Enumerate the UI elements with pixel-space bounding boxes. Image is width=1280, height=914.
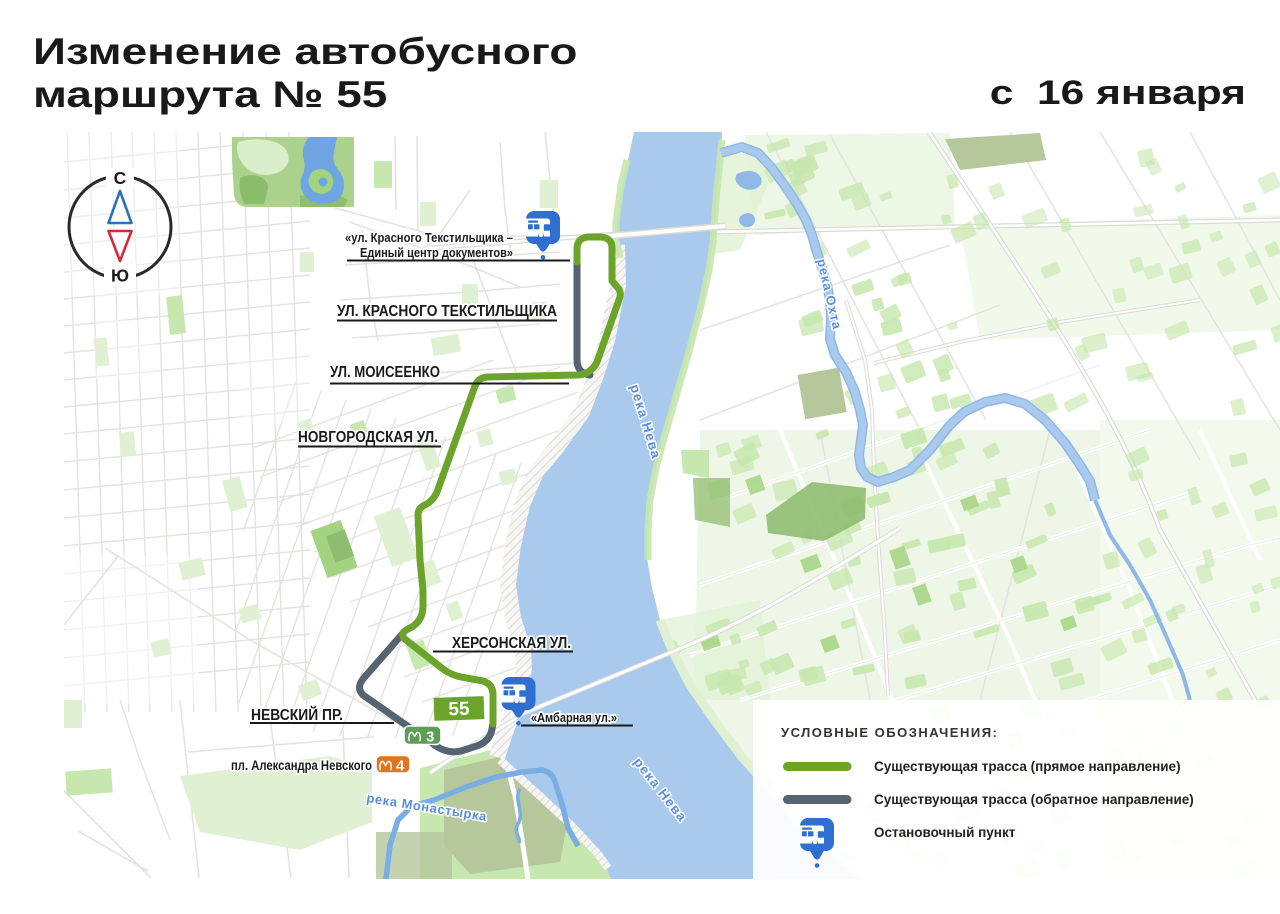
- svg-text:4: 4: [396, 758, 405, 775]
- svg-text:пл. Александра Невского: пл. Александра Невского: [231, 758, 372, 773]
- svg-text:3: 3: [426, 729, 434, 746]
- svg-text:Единый центр документов»: Единый центр документов»: [360, 245, 513, 260]
- svg-text:УЛ. КРАСНОГО ТЕКСТИЛЬЩИКА: УЛ. КРАСНОГО ТЕКСТИЛЬЩИКА: [337, 303, 557, 320]
- svg-text:УЛ. МОИСЕЕНКО: УЛ. МОИСЕЕНКО: [330, 364, 440, 381]
- svg-text:НОВГОРОДСКАЯ УЛ.: НОВГОРОДСКАЯ УЛ.: [298, 429, 438, 446]
- svg-text:«Амбарная ул.»: «Амбарная ул.»: [531, 710, 617, 725]
- svg-text:Ю: Ю: [111, 266, 129, 286]
- svg-text:Остановочный пункт: Остановочный пункт: [874, 825, 1016, 840]
- svg-text:УСЛОВНЫЕ ОБОЗНАЧЕНИЯ:: УСЛОВНЫЕ ОБОЗНАЧЕНИЯ:: [781, 725, 998, 740]
- svg-text:НЕВСКИЙ ПР.: НЕВСКИЙ ПР.: [251, 706, 343, 724]
- svg-text:«ул. Красного Текстильщика –: «ул. Красного Текстильщика –: [345, 230, 513, 245]
- svg-text:Существующая трасса (прямое на: Существующая трасса (прямое направление): [874, 759, 1181, 774]
- svg-text:55: 55: [448, 699, 470, 721]
- svg-text:ХЕРСОНСКАЯ УЛ.: ХЕРСОНСКАЯ УЛ.: [452, 635, 571, 652]
- svg-text:Существующая трасса (обратное: Существующая трасса (обратное направлени…: [874, 792, 1194, 807]
- svg-text:С: С: [114, 168, 127, 188]
